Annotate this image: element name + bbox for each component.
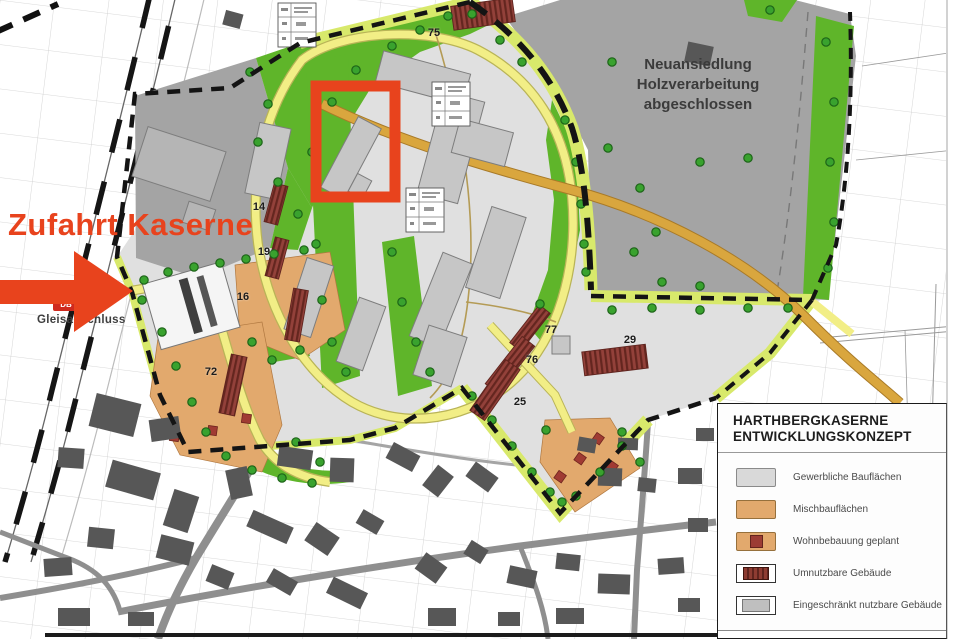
legend-item: Umnutzbare Gebäude bbox=[718, 557, 946, 589]
legend-item: Gewerbliche Bauflächen bbox=[718, 461, 946, 493]
db-logo: DB bbox=[53, 298, 79, 311]
zufahrt-kaserne-label: Zufahrt Kaserne bbox=[8, 207, 253, 243]
building-number-75: 75 bbox=[428, 27, 440, 39]
map-right-margin bbox=[946, 0, 959, 639]
legend-item-label: Gewerbliche Bauflächen bbox=[793, 472, 901, 483]
red-square-icon bbox=[750, 535, 763, 548]
building-number-77: 77 bbox=[545, 324, 557, 336]
neuansiedlung-label: Neuansiedlung Holzverarbeitung abgeschlo… bbox=[598, 55, 798, 115]
legend-items: Gewerbliche Bauflächen Mischbauflächen W… bbox=[718, 453, 946, 621]
legend-item-label: Eingeschränkt nutzbare Gebäude bbox=[793, 600, 942, 611]
building-number-19: 19 bbox=[258, 246, 270, 258]
building-number-25: 25 bbox=[514, 396, 526, 408]
legend-item: Wohnbebauung geplant bbox=[718, 525, 946, 557]
building-number-14: 14 bbox=[253, 201, 265, 213]
legend-item: Eingeschränkt nutzbare Gebäude bbox=[718, 589, 946, 621]
building-number-72: 72 bbox=[205, 366, 217, 378]
legend-footer: PLANUNGSGRUPPE IKOS bbox=[718, 630, 946, 639]
hatched-building-icon bbox=[743, 567, 769, 580]
legend-swatch-mixed bbox=[736, 500, 776, 519]
legend-panel: HARTHBERGKASERNE ENTWICKLUNGSKONZEPT Gew… bbox=[717, 403, 947, 639]
legend-swatch-commercial bbox=[736, 468, 776, 487]
legend-title: HARTHBERGKASERNE ENTWICKLUNGSKONZEPT bbox=[718, 404, 946, 453]
legend-title-line2: ENTWICKLUNGSKONZEPT bbox=[733, 429, 946, 445]
legend-item-label: Umnutzbare Gebäude bbox=[793, 568, 891, 579]
legend-swatch-restricted bbox=[736, 596, 776, 615]
legend-item-label: Mischbauflächen bbox=[793, 504, 868, 515]
building-number-29: 29 bbox=[624, 334, 636, 346]
gleisanschluss-label: Gleisanschluss bbox=[37, 314, 126, 326]
gray-building-icon bbox=[742, 599, 770, 612]
legend-item-label: Wohnbebauung geplant bbox=[793, 536, 899, 547]
legend-item: Mischbauflächen bbox=[718, 493, 946, 525]
neuansiedlung-line1: Neuansiedlung bbox=[598, 55, 798, 75]
building-number-76: 76 bbox=[526, 354, 538, 366]
map-bottom-edge bbox=[45, 633, 717, 637]
building-number-16: 16 bbox=[237, 291, 249, 303]
legend-title-line1: HARTHBERGKASERNE bbox=[733, 413, 946, 429]
legend-swatch-reusable bbox=[736, 564, 776, 583]
site-plan: Zufahrt Kaserne Neuansiedlung Holzverarb… bbox=[0, 0, 959, 639]
legend-swatch-housing bbox=[736, 532, 776, 551]
neuansiedlung-line3: abgeschlossen bbox=[598, 95, 798, 115]
neuansiedlung-line2: Holzverarbeitung bbox=[598, 75, 798, 95]
